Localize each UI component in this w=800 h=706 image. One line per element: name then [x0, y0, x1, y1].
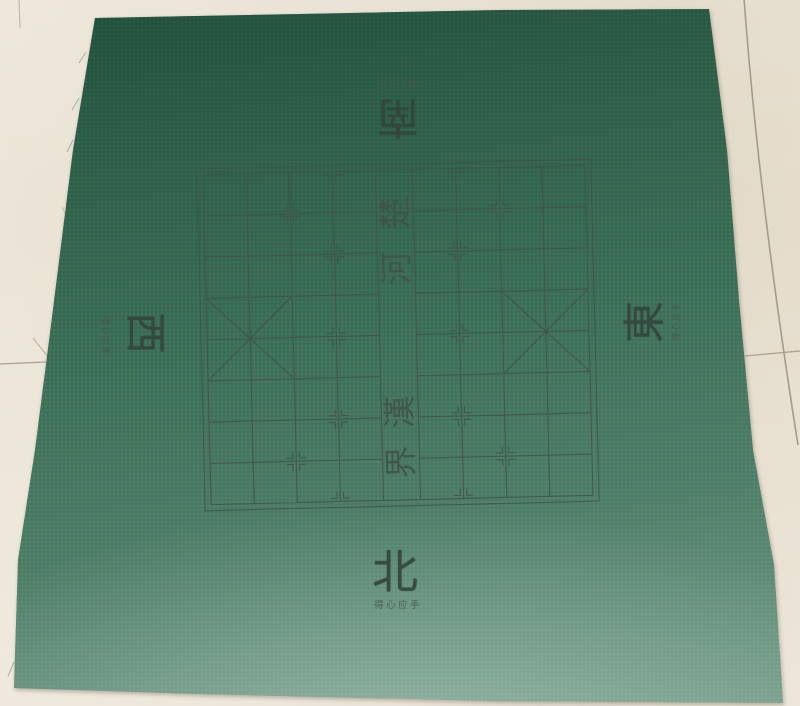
- river-text-char: 漢: [380, 395, 420, 429]
- river-text-char: 河: [376, 251, 416, 285]
- river-text-char: 楚: [375, 196, 415, 230]
- slogan-south: 得心应手: [360, 77, 432, 87]
- mat-shadow-wrap: 楚河漢界 得心应手 南 北 得心应手 得心应手 西 東 得心应手: [0, 0, 800, 706]
- compass-south-character: 南: [375, 94, 421, 140]
- photo-scene: 楚河漢界 得心应手 南 北 得心应手 得心应手 西 東 得心应手: [0, 0, 800, 706]
- compass-west-character: 西: [122, 310, 168, 356]
- slogan-east: 得心应手: [672, 285, 682, 357]
- slogan-west: 得心应手: [100, 300, 110, 372]
- river-text-char: 界: [381, 445, 421, 479]
- green-cloth-mat: 楚河漢界 得心应手 南 北 得心应手 得心应手 西 東 得心应手: [0, 0, 800, 706]
- xiangqi-board: 楚河漢界: [194, 156, 602, 514]
- compass-east-character: 東: [622, 299, 668, 345]
- slogan-north: 得心应手: [362, 601, 434, 611]
- compass-north-character: 北: [372, 549, 418, 595]
